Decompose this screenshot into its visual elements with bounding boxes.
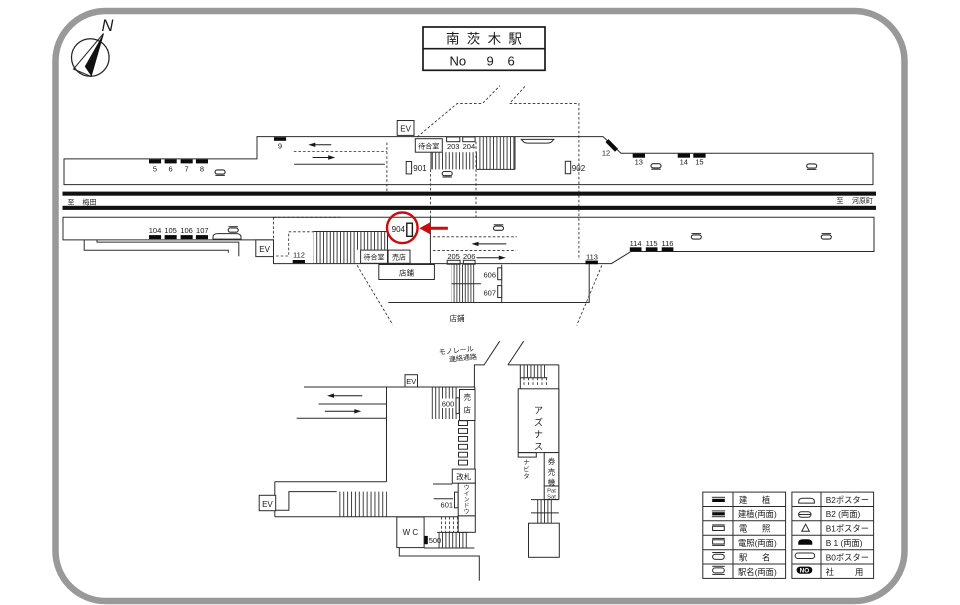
svg-text:EV: EV xyxy=(259,245,270,254)
svg-text:13: 13 xyxy=(635,158,643,167)
svg-text:売店: 売店 xyxy=(392,253,406,262)
svg-text:105: 105 xyxy=(164,226,177,235)
svg-text:駅: 駅 xyxy=(739,552,748,562)
svg-text:901: 901 xyxy=(413,164,427,173)
svg-text:No: No xyxy=(450,53,467,68)
svg-text:用: 用 xyxy=(855,567,863,577)
svg-text:600: 600 xyxy=(442,400,455,409)
svg-text:売: 売 xyxy=(548,467,556,477)
svg-text:EV: EV xyxy=(406,377,416,386)
svg-text:名: 名 xyxy=(762,552,770,562)
svg-text:券: 券 xyxy=(548,456,556,466)
svg-text:607: 607 xyxy=(483,288,496,297)
svg-text:116: 116 xyxy=(662,239,674,248)
svg-text:ウ: ウ xyxy=(464,484,470,492)
svg-text:205: 205 xyxy=(447,252,460,261)
svg-text:606: 606 xyxy=(483,271,496,280)
svg-text:B0ポスター: B0ポスター xyxy=(826,552,869,562)
svg-text:至: 至 xyxy=(837,197,844,205)
svg-text:店鋪: 店鋪 xyxy=(450,313,465,323)
svg-text:6: 6 xyxy=(508,53,515,68)
svg-text:14: 14 xyxy=(680,158,688,167)
svg-text:113: 113 xyxy=(586,252,598,261)
svg-text:8: 8 xyxy=(200,165,204,174)
svg-text:照: 照 xyxy=(762,524,770,534)
svg-text:904: 904 xyxy=(392,225,406,234)
svg-text:駅名(両面): 駅名(両面) xyxy=(738,567,777,577)
svg-text:B2ポスター: B2ポスター xyxy=(826,495,869,505)
svg-text:6: 6 xyxy=(169,165,173,174)
svg-text:ナ: ナ xyxy=(534,430,543,440)
svg-text:ア: ア xyxy=(534,406,543,416)
svg-text:15: 15 xyxy=(695,158,703,167)
svg-text:電: 電 xyxy=(739,524,747,534)
svg-text:ナ: ナ xyxy=(523,460,529,467)
svg-text:203: 203 xyxy=(447,142,460,151)
svg-text:ビ: ビ xyxy=(523,466,529,474)
svg-text:112: 112 xyxy=(293,251,305,260)
svg-text:改札: 改札 xyxy=(456,472,471,482)
svg-text:N: N xyxy=(102,17,114,35)
svg-text:B1ポスター: B1ポスター xyxy=(826,524,869,534)
svg-text:115: 115 xyxy=(646,239,658,248)
svg-text:5: 5 xyxy=(153,165,157,174)
svg-text:ス: ス xyxy=(534,442,543,452)
svg-text:建植(両面): 建植(両面) xyxy=(738,509,777,519)
svg-text:EV: EV xyxy=(400,125,411,134)
svg-text:12: 12 xyxy=(602,149,610,158)
svg-text:106: 106 xyxy=(180,226,193,235)
svg-text:売: 売 xyxy=(463,392,471,402)
svg-text:NO: NO xyxy=(800,568,810,575)
svg-text:206: 206 xyxy=(463,252,476,261)
svg-text:7: 7 xyxy=(185,165,189,174)
svg-text:店鋪: 店鋪 xyxy=(399,268,414,278)
svg-text:至: 至 xyxy=(68,199,75,207)
svg-text:W C: W C xyxy=(403,528,419,537)
svg-text:待合室: 待合室 xyxy=(364,253,385,262)
svg-text:植: 植 xyxy=(762,495,770,505)
svg-text:107: 107 xyxy=(196,226,209,235)
svg-text:河原町: 河原町 xyxy=(852,197,873,205)
svg-text:建: 建 xyxy=(739,495,747,505)
svg-text:B 1 (両面): B 1 (両面) xyxy=(826,538,863,548)
svg-text:204: 204 xyxy=(463,142,476,151)
svg-text:114: 114 xyxy=(630,239,642,248)
svg-text:9: 9 xyxy=(278,142,282,151)
svg-text:社: 社 xyxy=(826,567,834,577)
svg-text:電照(両面): 電照(両面) xyxy=(738,538,777,548)
svg-text:待合室: 待合室 xyxy=(418,141,439,150)
svg-text:EV: EV xyxy=(262,500,273,509)
svg-text:ズ: ズ xyxy=(534,417,543,428)
svg-text:店: 店 xyxy=(463,405,471,415)
svg-text:南茨木駅: 南茨木駅 xyxy=(446,32,529,47)
svg-text:B2 (両面): B2 (両面) xyxy=(826,509,861,519)
svg-text:9: 9 xyxy=(487,53,494,68)
svg-text:104: 104 xyxy=(149,226,162,235)
svg-text:タ: タ xyxy=(523,473,529,481)
svg-text:ウ: ウ xyxy=(464,508,470,516)
svg-text:601: 601 xyxy=(441,500,454,509)
svg-text:梅田: 梅田 xyxy=(83,198,97,207)
